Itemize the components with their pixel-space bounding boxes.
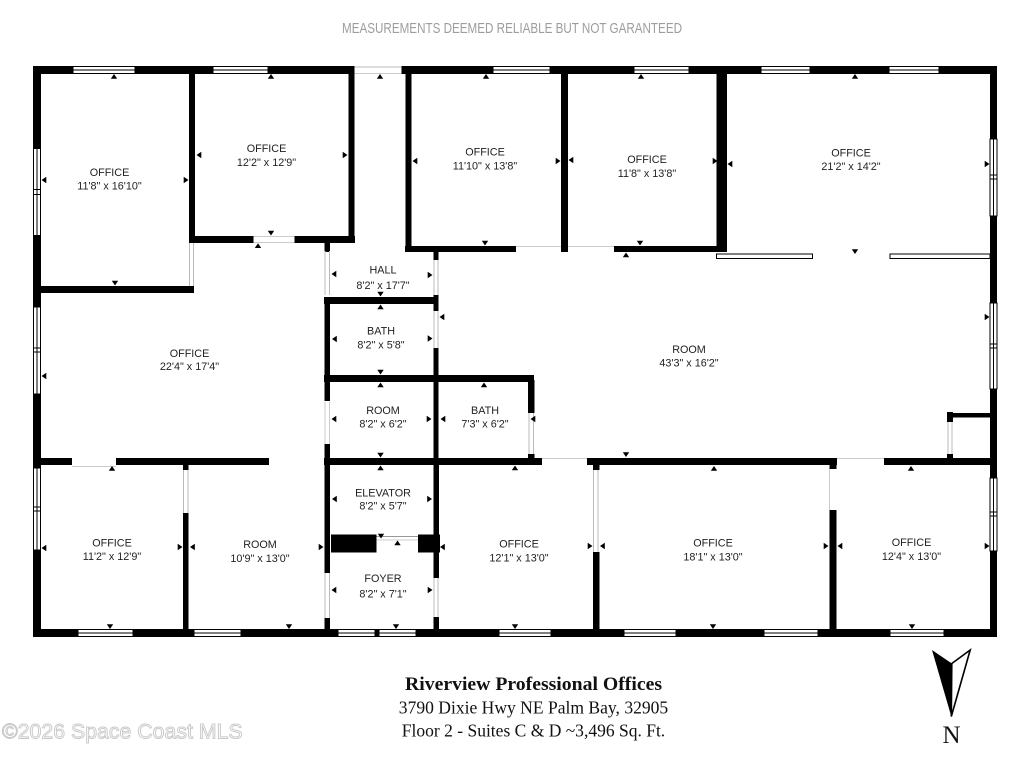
svg-text:N: N (942, 722, 960, 749)
svg-text:12'2" x 12'9": 12'2" x 12'9" (237, 157, 296, 169)
svg-text:OFFICE: OFFICE (892, 537, 932, 549)
svg-text:ROOM: ROOM (243, 539, 277, 551)
svg-text:OFFICE: OFFICE (465, 147, 505, 159)
svg-text:18'1" x 13'0": 18'1" x 13'0" (683, 552, 742, 564)
svg-text:HALL: HALL (369, 265, 396, 277)
svg-text:OFFICE: OFFICE (627, 154, 667, 166)
svg-text:ROOM: ROOM (672, 344, 706, 356)
svg-text:8'2" x 5'8": 8'2" x 5'8" (357, 340, 404, 352)
svg-text:OFFICE: OFFICE (247, 143, 287, 155)
svg-text:11'8" x 16'10": 11'8" x 16'10" (77, 181, 142, 193)
svg-text:OFFICE: OFFICE (499, 539, 539, 551)
svg-text:7'3" x 6'2": 7'3" x 6'2" (461, 419, 508, 431)
svg-text:Floor 2 - Suites C & D ~3,496: Floor 2 - Suites C & D ~3,496 Sq. Ft. (402, 721, 665, 741)
svg-text:OFFICE: OFFICE (170, 348, 210, 360)
svg-text:11'2" x 12'9": 11'2" x 12'9" (83, 551, 142, 563)
svg-text:OFFICE: OFFICE (693, 538, 733, 550)
svg-text:FOYER: FOYER (364, 573, 401, 585)
svg-text:8'2" x 7'1": 8'2" x 7'1" (359, 589, 406, 601)
svg-text:8'2" x 5'7": 8'2" x 5'7" (359, 501, 406, 513)
svg-text:10'9" x 13'0": 10'9" x 13'0" (230, 553, 289, 565)
svg-text:11'10" x 13'8": 11'10" x 13'8" (453, 161, 518, 173)
svg-text:ROOM: ROOM (366, 405, 400, 417)
svg-text:8'2" x 17'7": 8'2" x 17'7" (356, 280, 409, 292)
svg-text:OFFICE: OFFICE (90, 167, 130, 179)
svg-text:BATH: BATH (367, 326, 395, 338)
svg-text:BATH: BATH (471, 405, 499, 417)
svg-text:12'4" x 13'0": 12'4" x 13'0" (882, 551, 941, 563)
svg-text:OFFICE: OFFICE (92, 538, 132, 550)
svg-text:MEASUREMENTS DEEMED RELIABLE B: MEASUREMENTS DEEMED RELIABLE BUT NOT GAR… (342, 21, 682, 37)
svg-text:©2026 Space Coast MLS: ©2026 Space Coast MLS (2, 720, 243, 744)
svg-text:22'4" x 17'4": 22'4" x 17'4" (160, 361, 219, 373)
svg-text:3790 Dixie Hwy NE Palm Bay, 32: 3790 Dixie Hwy NE Palm Bay, 32905 (399, 698, 669, 718)
svg-text:8'2" x 6'2": 8'2" x 6'2" (359, 419, 406, 431)
svg-text:11'8" x 13'8": 11'8" x 13'8" (618, 168, 677, 180)
svg-text:12'1" x 13'0": 12'1" x 13'0" (489, 553, 548, 565)
svg-text:21'2" x 14'2": 21'2" x 14'2" (821, 161, 880, 173)
svg-text:Riverview Professional Offices: Riverview Professional Offices (405, 674, 663, 695)
svg-text:ELEVATOR: ELEVATOR (355, 488, 411, 500)
svg-text:43'3" x 16'2": 43'3" x 16'2" (659, 358, 718, 370)
svg-text:OFFICE: OFFICE (831, 148, 871, 160)
